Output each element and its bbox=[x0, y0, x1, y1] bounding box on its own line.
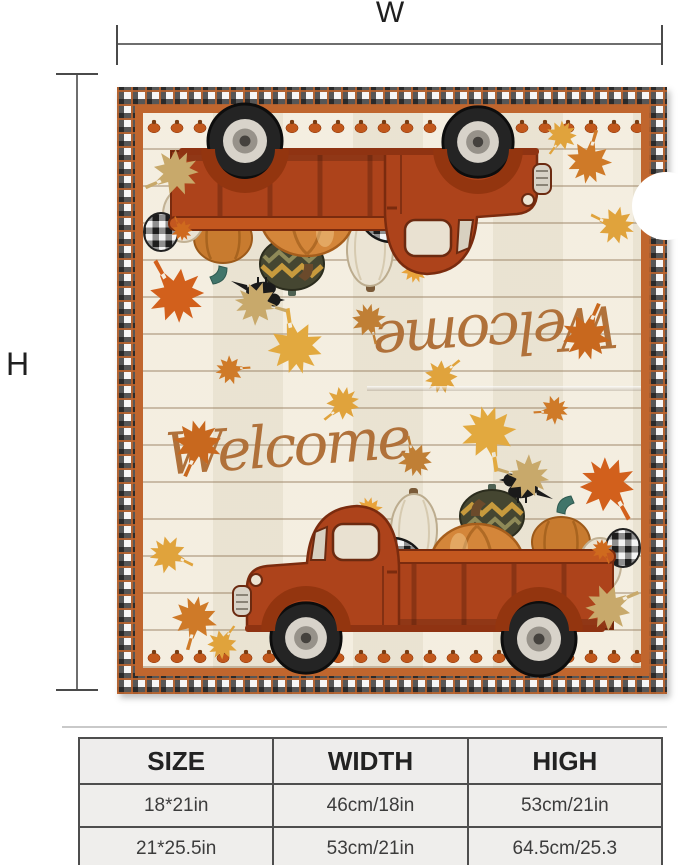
width-dimension-line bbox=[117, 43, 663, 45]
width-value: 53cm/21in bbox=[273, 827, 467, 865]
maple-leaf-icon bbox=[492, 447, 554, 504]
fall-welcome-flag-image: Welcome Welcome bbox=[117, 87, 667, 694]
height-dimension-label: H bbox=[6, 346, 29, 383]
size-table: SIZE WIDTH HIGH 18*21in 46cm/18in 53cm/2… bbox=[78, 737, 663, 865]
width-dimension-label: W bbox=[117, 0, 663, 30]
table-row: 18*21in 46cm/18in 53cm/21in bbox=[79, 784, 662, 827]
size-table-header-high: HIGH bbox=[468, 738, 662, 784]
width-line-right-tick bbox=[661, 25, 663, 65]
high-value: 64.5cm/25.3 bbox=[468, 827, 662, 865]
size-table-header-row: SIZE WIDTH HIGH bbox=[79, 738, 662, 784]
maple-leaf-icon bbox=[212, 351, 254, 389]
maple-leaf-icon bbox=[530, 392, 572, 430]
size-table-header-size: SIZE bbox=[79, 738, 273, 784]
height-line-top-tick bbox=[56, 73, 98, 75]
table-outer-top-line bbox=[62, 726, 667, 728]
flag-back-half-rotated: Welcome bbox=[143, 113, 641, 390]
size-value: 18*21in bbox=[79, 784, 273, 827]
height-line-bottom-tick bbox=[56, 689, 98, 691]
truck-with-pumpkins-illustration bbox=[145, 97, 575, 312]
product-dimension-image: W H Welcome Welcome bbox=[0, 0, 679, 865]
flag-front-half: Welcome bbox=[143, 390, 641, 668]
table-row: 21*25.5in 53cm/21in 64.5cm/25.3 bbox=[79, 827, 662, 865]
maple-leaf-icon bbox=[230, 276, 292, 333]
size-value: 21*25.5in bbox=[79, 827, 273, 865]
size-table-header-width: WIDTH bbox=[273, 738, 467, 784]
high-value: 53cm/21in bbox=[468, 784, 662, 827]
maple-leaf-icon bbox=[142, 528, 201, 584]
truck-with-pumpkins-illustration bbox=[209, 468, 639, 683]
width-line-left-tick bbox=[116, 25, 118, 65]
height-dimension-line bbox=[76, 74, 78, 690]
panel-seam bbox=[367, 386, 641, 391]
width-value: 46cm/18in bbox=[273, 784, 467, 827]
